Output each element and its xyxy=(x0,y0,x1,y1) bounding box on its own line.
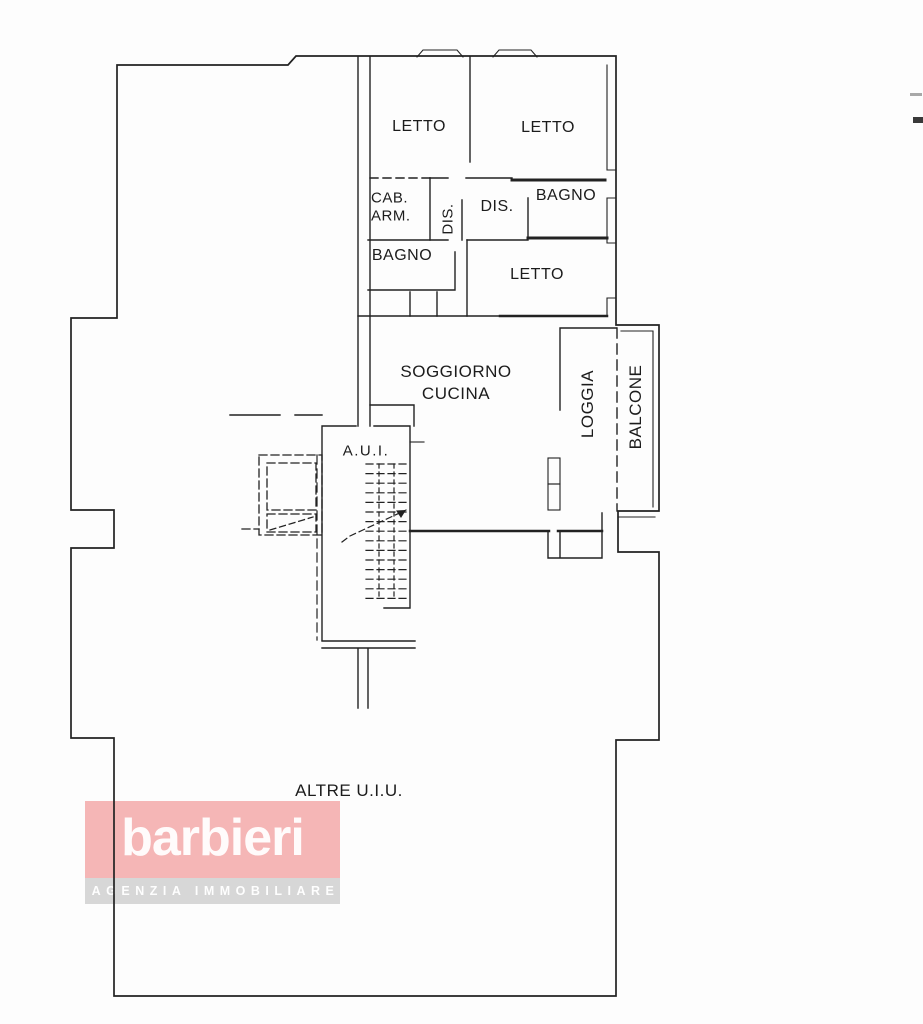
floor-plan-drawing xyxy=(0,0,923,1024)
room-label-dis-corridor: DIS. xyxy=(440,203,457,234)
scan-marks xyxy=(910,93,923,123)
room-label-soggiorno-line1: SOGGIORNO xyxy=(400,362,511,382)
room-label-letto-1: LETTO xyxy=(392,118,446,136)
room-label-cab-arm-line2: ARM. xyxy=(371,208,411,225)
room-label-bagno-left: BAGNO xyxy=(372,247,432,265)
stair-treads xyxy=(342,464,408,598)
room-label-balcone: BALCONE xyxy=(626,365,646,450)
room-label-letto-3: LETTO xyxy=(510,266,564,284)
stairwell xyxy=(317,426,424,708)
room-label-cab-arm-line1: CAB. xyxy=(371,190,408,207)
floor-plan-page: barbieri AGENZIA IMMOBILIARE xyxy=(0,0,923,1024)
room-label-dis-room: DIS. xyxy=(480,198,513,216)
room-label-soggiorno-line2: CUCINA xyxy=(422,384,490,404)
room-label-altre-uiu: ALTRE U.I.U. xyxy=(295,781,403,801)
elevator-shaft xyxy=(242,455,322,535)
room-label-loggia: LOGGIA xyxy=(578,370,598,438)
room-label-letto-2: LETTO xyxy=(521,119,575,137)
room-label-bagno-top: BAGNO xyxy=(536,187,596,205)
room-label-aui: A.U.I. xyxy=(343,443,390,460)
